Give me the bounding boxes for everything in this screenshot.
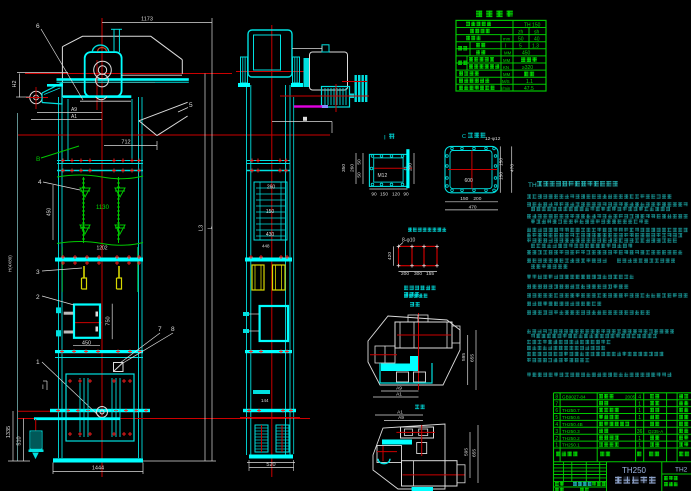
svg-text:150: 150 — [380, 192, 388, 198]
svg-text:TH 150: TH 150 — [524, 22, 541, 28]
svg-text:A1: A1 — [396, 392, 402, 398]
svg-text:155: 155 — [426, 271, 434, 277]
svg-text:TH250.1: TH250.1 — [562, 443, 580, 448]
svg-text:H2: H2 — [12, 80, 18, 87]
svg-text:150: 150 — [460, 196, 468, 202]
svg-text:450: 450 — [522, 51, 531, 57]
svg-text:4: 4 — [555, 422, 558, 428]
svg-text:A1: A1 — [71, 114, 77, 120]
svg-text:655: 655 — [472, 449, 478, 457]
svg-text:M12: M12 — [378, 173, 388, 179]
svg-text:655: 655 — [470, 354, 476, 362]
svg-text:8: 8 — [555, 394, 558, 400]
svg-text:450: 450 — [82, 341, 91, 347]
svg-text:M/S: M/S — [502, 79, 510, 84]
svg-text:≥320: ≥320 — [522, 65, 533, 71]
svg-text:8-φ10: 8-φ10 — [402, 238, 415, 244]
svg-text:510: 510 — [17, 436, 23, 445]
svg-text:50: 50 — [518, 37, 524, 43]
svg-text:144: 144 — [261, 398, 269, 403]
svg-text:448: 448 — [262, 244, 270, 249]
svg-text:sh: sh — [534, 29, 540, 35]
svg-text:zh: zh — [518, 29, 524, 35]
svg-text:200: 200 — [401, 271, 409, 277]
svg-text:150: 150 — [499, 158, 505, 166]
svg-text:I: I — [42, 384, 44, 391]
svg-text:r/min: r/min — [501, 86, 511, 91]
svg-text:1444: 1444 — [92, 466, 104, 472]
svg-text:TH250.3: TH250.3 — [562, 429, 580, 434]
svg-text:C: C — [462, 134, 466, 140]
svg-text:2: 2 — [36, 294, 40, 301]
svg-text:1.1: 1.1 — [526, 79, 533, 85]
svg-text:2: 2 — [555, 436, 558, 442]
svg-text:150: 150 — [499, 172, 505, 180]
svg-text:5: 5 — [189, 102, 193, 109]
svg-text:47.5: 47.5 — [524, 86, 534, 92]
svg-text:12-φ12: 12-φ12 — [485, 136, 501, 142]
svg-text:520: 520 — [266, 462, 275, 468]
svg-text:1: 1 — [638, 401, 641, 407]
svg-text:TH250: TH250 — [622, 466, 647, 475]
svg-text:350: 350 — [341, 164, 347, 172]
svg-text:MM: MM — [504, 51, 512, 56]
svg-text:712: 712 — [121, 139, 130, 145]
svg-text:90: 90 — [403, 192, 409, 198]
svg-text:TH250.7: TH250.7 — [562, 408, 580, 413]
svg-text:6: 6 — [36, 23, 40, 30]
svg-text:A9: A9 — [396, 386, 402, 392]
svg-text:MM: MM — [503, 58, 511, 63]
svg-text:1: 1 — [638, 415, 641, 421]
svg-text:2005: 2005 — [625, 394, 636, 399]
svg-text:7: 7 — [158, 326, 162, 333]
svg-text:90: 90 — [371, 192, 377, 198]
svg-text:50: 50 — [357, 172, 363, 178]
svg-text:6: 6 — [555, 408, 558, 414]
svg-text:430: 430 — [266, 232, 275, 238]
svg-text:TH2: TH2 — [675, 467, 688, 474]
svg-text:750: 750 — [106, 316, 112, 325]
svg-text:TH250.6: TH250.6 — [562, 415, 580, 420]
svg-text:1.3: 1.3 — [532, 44, 539, 50]
svg-text:8: 8 — [171, 326, 175, 333]
svg-text:4: 4 — [38, 179, 42, 186]
svg-text:mm: mm — [503, 37, 511, 42]
svg-text:1: 1 — [638, 436, 641, 442]
svg-text:420: 420 — [387, 252, 393, 260]
svg-text:600: 600 — [465, 178, 474, 184]
svg-text:TH250.2: TH250.2 — [562, 436, 580, 441]
svg-text:1: 1 — [36, 359, 40, 366]
svg-text:470: 470 — [469, 204, 477, 210]
svg-text:50: 50 — [357, 159, 363, 165]
svg-text:Q235-A: Q235-A — [648, 429, 663, 434]
svg-text:1335: 1335 — [6, 426, 12, 438]
svg-text:150: 150 — [266, 209, 275, 215]
svg-text:A1: A1 — [397, 410, 403, 416]
svg-text:GB9027-84: GB9027-84 — [562, 394, 586, 399]
svg-text:TH250.4B: TH250.4B — [562, 422, 583, 427]
svg-text:1202: 1202 — [96, 246, 107, 252]
svg-text:A9: A9 — [398, 415, 404, 421]
svg-text:B: B — [36, 156, 40, 163]
svg-text:A9: A9 — [71, 107, 77, 113]
svg-text:L: L — [208, 226, 214, 229]
svg-text:260: 260 — [350, 164, 356, 172]
svg-text:H(4X80): H(4X80) — [8, 255, 13, 272]
svg-text:300: 300 — [414, 271, 422, 277]
svg-text:200: 200 — [473, 196, 481, 202]
svg-text:470: 470 — [510, 164, 516, 172]
svg-text:7: 7 — [555, 401, 558, 407]
svg-text:595: 595 — [461, 353, 467, 361]
svg-text:L3: L3 — [199, 225, 205, 231]
svg-text:120: 120 — [392, 192, 400, 198]
svg-text:5: 5 — [519, 44, 522, 50]
svg-text:200: 200 — [408, 163, 414, 171]
svg-text:36: 36 — [637, 429, 643, 435]
svg-text:450: 450 — [47, 208, 53, 217]
svg-text:1173: 1173 — [141, 17, 153, 23]
svg-text:KN: KN — [503, 65, 509, 70]
svg-text:1: 1 — [638, 443, 641, 449]
svg-text:40: 40 — [534, 37, 540, 43]
svg-text:4: 4 — [638, 394, 641, 400]
svg-text:1: 1 — [555, 443, 558, 449]
svg-text:1: 1 — [638, 408, 641, 414]
svg-text:l: l — [505, 44, 506, 50]
svg-text:1130: 1130 — [96, 205, 110, 211]
svg-text:3: 3 — [555, 429, 558, 435]
svg-text:MM: MM — [503, 72, 511, 77]
svg-text:TH: TH — [528, 182, 537, 189]
svg-text:5: 5 — [555, 415, 558, 421]
svg-text:260: 260 — [267, 185, 276, 191]
svg-text:595: 595 — [464, 448, 470, 456]
svg-text:3: 3 — [36, 269, 40, 276]
